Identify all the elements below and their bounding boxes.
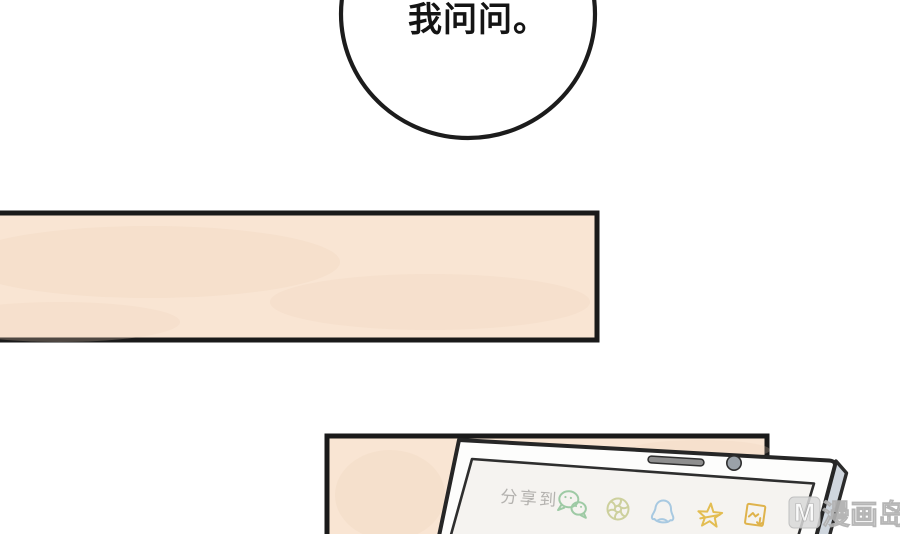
speech-bubble-text: 我问问。: [408, 1, 548, 39]
panel-texture: [270, 274, 590, 330]
comic-page: 我问问。 分享到: [0, 0, 900, 534]
share-to-label: 分享到: [500, 487, 560, 510]
watermark-site-name: 漫画岛: [822, 498, 900, 530]
watermark-logo-letter: M: [794, 499, 815, 527]
phone: 分享到: [434, 440, 847, 534]
speech-bubble: 我问问。: [341, 0, 595, 138]
watermark: M 漫画岛: [789, 497, 900, 530]
phone-camera-icon: [727, 456, 741, 470]
comic-panel-top: [0, 213, 597, 342]
